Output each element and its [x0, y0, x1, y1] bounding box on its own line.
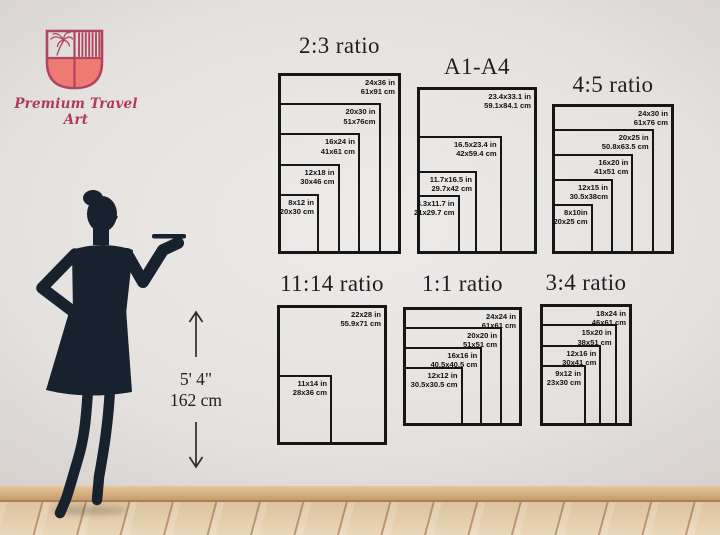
size-rect: 8.3x11.7 in21x29.7 cm — [417, 195, 460, 254]
size-cm: 28x36 cm — [293, 388, 327, 397]
size-frame: 24x36 in61x91 cm20x30 in51x76cm16x24 in4… — [278, 73, 401, 254]
size-inches: 12x15 in — [570, 183, 608, 192]
size-rect: 8x12 in20x30 cm — [278, 194, 319, 254]
size-inches: 20x25 in — [602, 133, 649, 142]
size-inches: 24x30 in — [634, 109, 668, 118]
brand-name: Premium Travel Art — [12, 96, 140, 128]
size-inches: 16x16 in — [430, 351, 477, 360]
size-cm: 20x25 cm — [553, 217, 587, 226]
size-inches: 12x18 in — [300, 168, 334, 177]
brand-crest-shield-icon — [44, 28, 105, 91]
size-inches: 16x20 in — [594, 158, 628, 167]
size-inches: 12x12 in — [411, 371, 458, 380]
size-inches: 12x16 in — [562, 349, 596, 358]
down-arrow-icon — [187, 421, 205, 469]
size-inches: 22x28 in — [340, 310, 381, 319]
size-inches: 11.7x16.5 in — [430, 175, 472, 184]
palm-tree-icon — [51, 32, 73, 55]
size-inches: 24x36 in — [361, 78, 395, 87]
size-inches: 18x24 in — [592, 309, 626, 318]
size-inches: 16x24 in — [321, 137, 355, 146]
size-cm: 29.7x42 cm — [430, 184, 472, 193]
scene: Premium Travel Art 5' 4" 162 cm 2:3 — [0, 0, 720, 535]
size-inches: 8x10in — [553, 208, 587, 217]
size-rect: 11x14 in28x36 cm — [277, 375, 332, 445]
chart-title: 11:14 ratio — [280, 271, 384, 296]
size-inches: 24x24 in — [482, 312, 516, 321]
height-marker: 5' 4" 162 cm — [160, 310, 232, 469]
size-cm: 30.5x30.5 cm — [411, 380, 458, 389]
size-cm: 30x46 cm — [300, 177, 334, 186]
size-inches: 9x12 in — [547, 369, 581, 378]
chart-title: 1:1 ratio — [422, 271, 503, 296]
size-cm: 55.9x71 cm — [340, 319, 381, 328]
size-inches: 20x20 in — [463, 331, 497, 340]
size-inches: 11x14 in — [293, 379, 327, 388]
chart-title: 4:5 ratio — [573, 72, 654, 97]
size-cm: 61x76 cm — [634, 118, 668, 127]
chart-title: A1-A4 — [444, 54, 510, 79]
size-rect: 8x10in20x25 cm — [552, 204, 593, 254]
chart-title: 3:4 ratio — [546, 270, 627, 295]
size-cm: 51x76cm — [343, 117, 375, 126]
size-rect: 12x12 in30.5x30.5 cm — [403, 367, 463, 427]
chart-title: 2:3 ratio — [299, 33, 380, 58]
size-inches: 15x20 in — [577, 328, 611, 337]
size-inches: 8.3x11.7 in — [414, 199, 455, 208]
size-frame: 22x28 in55.9x71 cm11x14 in28x36 cm — [277, 305, 387, 445]
size-cm: 42x59.4 cm — [454, 149, 497, 158]
size-cm: 41x51 cm — [594, 167, 628, 176]
size-rect: 9x12 in23x30 cm — [540, 365, 586, 426]
size-cm: 30.5x38cm — [570, 192, 608, 201]
size-cm: 61x91 cm — [361, 87, 395, 96]
up-arrow-icon — [187, 310, 205, 358]
size-frame: 23.4x33.1 in59.1x84.1 cm16.5x23.4 in42x5… — [417, 87, 537, 254]
size-inches: 23.4x33.1 in — [484, 92, 531, 101]
size-cm: 50.8x63.5 cm — [602, 142, 649, 151]
size-cm: 23x30 cm — [547, 378, 581, 387]
size-inches: 20x30 in — [343, 107, 375, 116]
size-cm: 59.1x84.1 cm — [484, 101, 531, 110]
size-frame: 18x24 in46x61 cm15x20 in38x51 cm12x16 in… — [540, 304, 632, 426]
size-inches: 8x12 in — [280, 198, 314, 207]
height-cm: 162 cm — [160, 390, 232, 411]
size-inches: 16.5x23.4 in — [454, 140, 497, 149]
size-cm: 20x30 cm — [280, 207, 314, 216]
size-cm: 21x29.7 cm — [414, 208, 455, 217]
size-frame: 24x30 in61x76 cm20x25 in50.8x63.5 cm16x2… — [552, 104, 674, 254]
size-cm: 41x61 cm — [321, 147, 355, 156]
size-frame: 24x24 in61x61 cm20x20 in51x51 cm16x16 in… — [403, 307, 522, 426]
height-feet: 5' 4" — [160, 369, 232, 390]
